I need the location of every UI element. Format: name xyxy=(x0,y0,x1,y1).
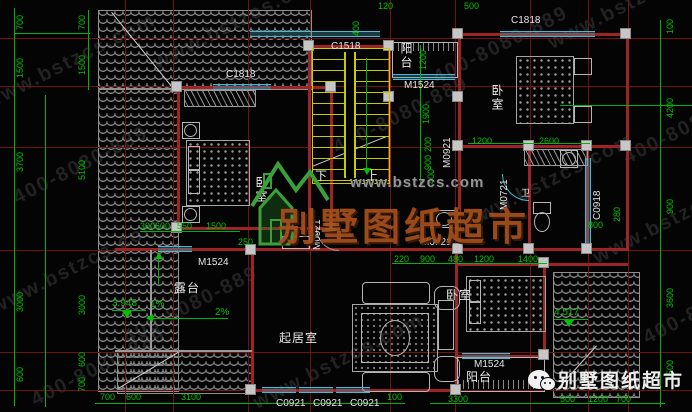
furniture xyxy=(574,106,592,123)
elevation-label: 3.948 xyxy=(112,299,137,309)
dimension-label: 280 xyxy=(613,207,622,222)
dimension-label: 3600 xyxy=(666,288,675,308)
diagonal-watermark: www.bstzcs.com xyxy=(590,164,692,267)
room-label: 起居室 xyxy=(279,332,318,344)
dimension-label: 600 xyxy=(126,393,141,402)
window xyxy=(158,246,192,252)
dimension-label: 500 xyxy=(560,395,575,404)
watermark-url: www.bstzcs.com xyxy=(350,174,484,191)
roof-hatch xyxy=(117,352,252,394)
column xyxy=(246,385,255,394)
dimension-label: 900 xyxy=(666,199,675,214)
stair-stringer xyxy=(344,52,356,178)
terrace-arrow-head xyxy=(155,252,163,259)
furniture xyxy=(524,149,588,166)
opening-tag: C0921 xyxy=(350,399,379,409)
dimension-label: 200 xyxy=(424,137,433,152)
dimension-label: 300 xyxy=(140,222,155,231)
dimension-label: 550 xyxy=(177,222,192,231)
dimension-line xyxy=(88,10,89,90)
dimension-label: 600 xyxy=(16,367,25,382)
terrace-arrow-line xyxy=(158,258,159,286)
dimension-label: 1200 xyxy=(472,137,492,146)
dimension-label: 1900 xyxy=(422,104,431,124)
dimension-label: 1500 xyxy=(78,55,87,75)
dimension-label: 1200 xyxy=(588,395,608,404)
dimension-label: 1500 xyxy=(206,222,226,231)
column xyxy=(582,244,591,253)
dimension-label: 100 xyxy=(666,19,675,34)
room-label: 露台 xyxy=(174,282,200,294)
wechat-banner: 别墅图纸超市 xyxy=(528,366,684,393)
dimension-label: 700 xyxy=(78,15,87,30)
dimension-label: 700 xyxy=(616,395,631,404)
roof-hatch xyxy=(98,10,312,90)
furniture xyxy=(516,56,574,124)
dimension-label: 1200 xyxy=(419,50,428,70)
dimension-label: 100 xyxy=(387,393,402,402)
wall-segment xyxy=(251,248,254,392)
watermark-brand: 别墅图纸超市 xyxy=(278,196,530,251)
drawing-element xyxy=(534,376,537,379)
dimension-label: 700 xyxy=(100,393,115,402)
roof-hatch xyxy=(98,88,179,392)
axis-grid-line xyxy=(0,38,692,39)
stair-arrow-line xyxy=(366,58,367,170)
opening-tag: C1818 xyxy=(511,16,540,26)
dimension-label: 500 xyxy=(464,2,479,11)
dimension-label: 3000 xyxy=(78,295,87,315)
window xyxy=(585,158,591,244)
furniture xyxy=(438,300,454,350)
dimension-label: 4200 xyxy=(666,98,675,118)
column xyxy=(453,141,462,150)
window xyxy=(500,31,595,37)
dimension-label: 900 xyxy=(424,155,433,170)
furniture xyxy=(184,208,197,221)
dimension-line xyxy=(660,20,661,407)
dimension-label: 3300 xyxy=(448,395,468,404)
dimension-label: 1400 xyxy=(518,255,538,264)
drawing-element xyxy=(541,378,555,390)
room-label: 阳台 xyxy=(400,42,412,70)
wechat-banner-label: 别墅图纸超市 xyxy=(558,366,684,393)
wechat-icon xyxy=(528,370,550,389)
elevation-label: 2% xyxy=(215,308,229,318)
elevation-triangle xyxy=(122,311,132,318)
slope-arrow-head xyxy=(146,314,153,322)
dimension-label: 220 xyxy=(394,255,409,264)
dimension-label: 3100 xyxy=(181,393,201,402)
dimension-line xyxy=(140,231,240,232)
room-label: 卧室 xyxy=(446,289,472,301)
dimension-label: 600 xyxy=(155,222,170,231)
furniture xyxy=(188,146,200,170)
opening-tag: M1524 xyxy=(474,360,505,370)
room-label: 卧室 xyxy=(491,84,503,112)
dimension-label: 800 xyxy=(588,221,603,230)
drawing-element xyxy=(544,382,546,384)
furniture xyxy=(562,152,576,166)
diagonal-watermark: 400-8080-889 xyxy=(620,83,692,168)
window xyxy=(213,84,271,90)
opening-tag: M1524 xyxy=(198,258,229,268)
elevation-label: 1% xyxy=(150,300,164,310)
window xyxy=(336,387,370,393)
column xyxy=(453,92,462,101)
dimension-label: 480 xyxy=(448,255,463,264)
opening-tag: M0921 xyxy=(443,137,453,168)
drawing-element xyxy=(549,382,551,384)
furniture xyxy=(469,302,481,324)
furniture xyxy=(380,320,410,356)
elevation-label: 4.517 xyxy=(554,308,579,318)
dimension-label: 600 xyxy=(78,352,87,367)
column xyxy=(621,29,630,38)
opening-tag: C1518 xyxy=(331,42,360,52)
dimension-label: 700 xyxy=(16,15,25,30)
dimension-label: 3000 xyxy=(16,292,25,312)
elevation-triangle xyxy=(564,320,574,327)
opening-tag: C0921 xyxy=(313,399,342,409)
dimension-label: 900 xyxy=(420,255,435,264)
dimension-label: 700 xyxy=(78,377,87,392)
dimension-label: 1200 xyxy=(474,255,494,264)
slope-arrow-line xyxy=(152,318,228,319)
dimension-label: 2600 xyxy=(539,137,559,146)
furniture xyxy=(434,356,460,382)
column xyxy=(453,29,462,38)
furniture xyxy=(184,124,197,137)
furniture xyxy=(574,58,592,75)
opening-tag: C0918 xyxy=(593,191,603,220)
column xyxy=(621,141,630,150)
dimension-label: 120 xyxy=(378,2,393,11)
column xyxy=(172,82,181,91)
dimension-line xyxy=(45,95,46,407)
window xyxy=(262,387,296,393)
dimension-label: 5100 xyxy=(78,160,87,180)
furniture xyxy=(188,170,200,194)
furniture xyxy=(362,282,430,304)
furniture xyxy=(362,372,430,392)
column xyxy=(539,350,548,359)
furniture xyxy=(534,212,550,232)
floor-plan-canvas: www.bstzcs.com 别墅图纸超市 别墅图纸超市 70015003700… xyxy=(0,0,692,412)
furniture xyxy=(184,90,256,107)
room-label: 阳台 xyxy=(466,371,492,383)
wall-segment xyxy=(177,86,180,230)
dimension-label: 400 xyxy=(352,21,361,36)
opening-tag: C0921 xyxy=(276,399,305,409)
column xyxy=(451,385,460,394)
dimension-line xyxy=(14,33,90,34)
opening-tag: M1524 xyxy=(404,81,435,91)
dimension-label: 1500 xyxy=(16,58,25,78)
opening-tag: C1818 xyxy=(226,70,255,80)
parapet-line xyxy=(115,350,252,352)
dimension-label: 3700 xyxy=(16,152,25,172)
window xyxy=(299,387,333,393)
